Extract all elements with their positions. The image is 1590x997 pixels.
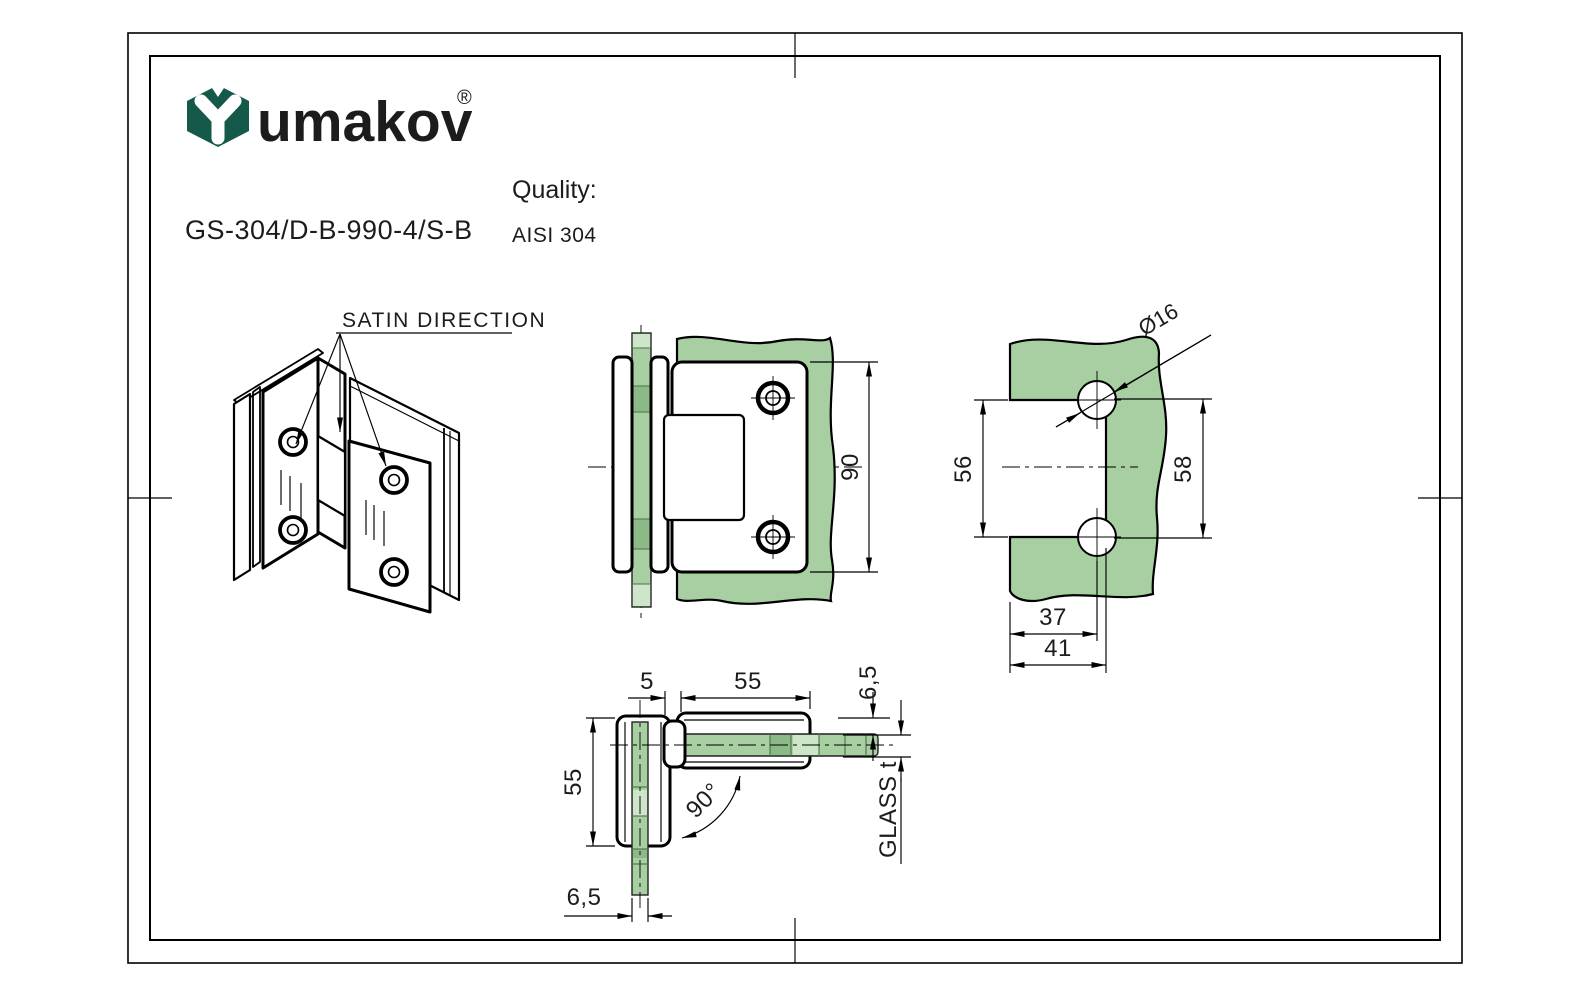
- glass-t-label: GLASS t: [875, 761, 902, 858]
- dim-text-55h: 55: [734, 668, 762, 695]
- umakov-wordmark: umakov: [257, 90, 473, 154]
- screw: [381, 559, 407, 585]
- screw: [280, 517, 306, 543]
- screw: [280, 429, 306, 455]
- front-view: 90: [588, 325, 878, 618]
- registered-mark: ®: [457, 87, 472, 109]
- dimension-glass-t: GLASS t: [843, 700, 911, 864]
- dim-text-37: 37: [1039, 604, 1067, 631]
- umakov-logo: umakov ®: [185, 80, 505, 158]
- door-glass-edge: [632, 333, 651, 607]
- screw: [381, 467, 407, 493]
- dim-text-d16: Ø16: [1134, 298, 1183, 341]
- dimension-angle-90: 90°: [681, 776, 740, 838]
- dimension-56: 56: [950, 400, 1008, 537]
- left-glass-edge: [234, 394, 250, 580]
- dim-text-90deg: 90°: [681, 778, 727, 824]
- umakov-logo-icon: [187, 85, 249, 147]
- dim-text-56: 56: [950, 455, 977, 483]
- satin-direction-label: SATIN DIRECTION: [342, 309, 546, 332]
- dimension-65-bottom: 6,5: [564, 884, 672, 922]
- glass-panel-cutout: [1010, 337, 1166, 601]
- dimension-55-vertical: 55: [560, 718, 615, 846]
- top-view: 5 55 6,5 GLASS t 55: [560, 665, 911, 922]
- quality-value: AISI 304: [512, 224, 597, 248]
- product-code: GS-304/D-B-990-4/S-B: [185, 215, 473, 246]
- knuckle-section: [664, 721, 685, 767]
- quality-label: Quality:: [512, 176, 597, 205]
- dim-text-65-top: 6,5: [855, 665, 882, 700]
- left-glass-edge-inner: [253, 387, 260, 567]
- dim-text-58: 58: [1170, 455, 1197, 483]
- dim-text-41: 41: [1044, 635, 1072, 662]
- dim-text-5: 5: [640, 668, 654, 695]
- dimension-5-55: 5 55: [628, 668, 810, 715]
- dim-text-90: 90: [837, 453, 864, 481]
- glass-cutout-view: Ø16 56 58 37 41: [950, 298, 1212, 673]
- isometric-view: SATIN DIRECTION: [234, 309, 546, 612]
- hinge-knuckle-front: [664, 415, 744, 520]
- drawing-sheet: { "header": { "brand": "umakov", "regist…: [0, 0, 1590, 997]
- door-clamp-plate-outer: [613, 357, 632, 572]
- dim-text-55v: 55: [560, 768, 587, 796]
- dim-text-65-bottom: 6,5: [567, 884, 602, 911]
